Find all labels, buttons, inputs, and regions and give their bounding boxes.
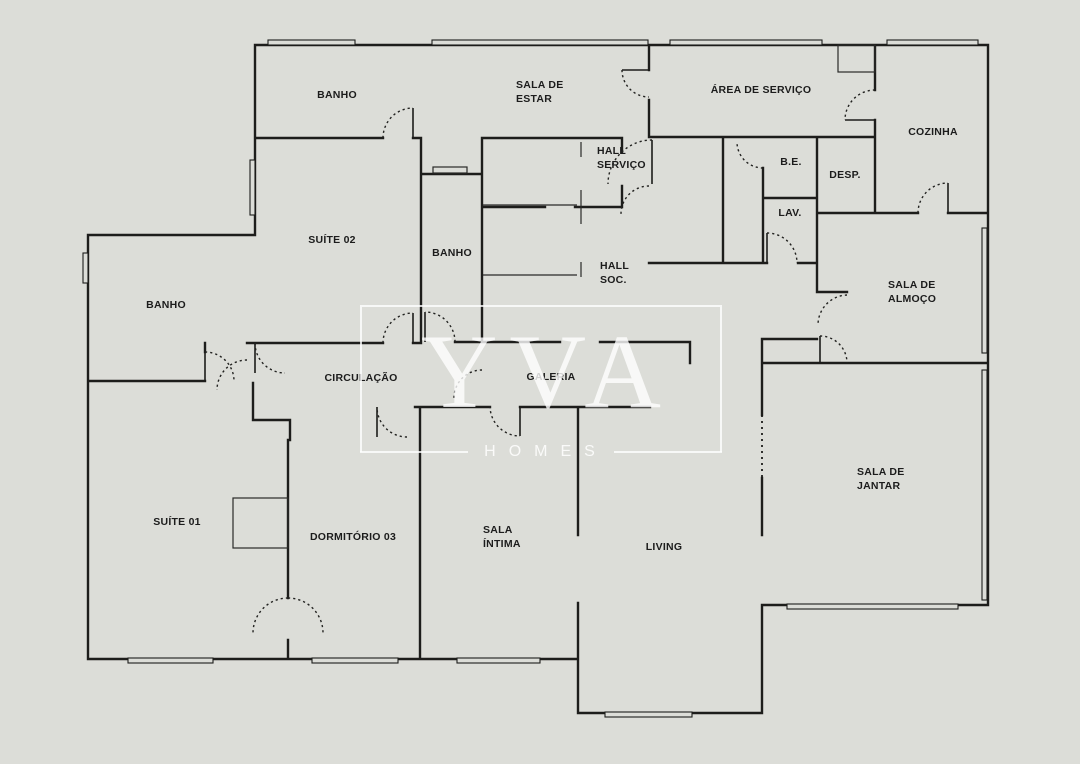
room-label-suite-02: SUÍTE 02 <box>308 234 356 248</box>
room-label-desp: DESP. <box>829 169 860 183</box>
room-label-sala-intima: SALA ÍNTIMA <box>483 524 521 552</box>
room-label-hall-soc: HALL SOC. <box>600 260 629 288</box>
room-label-suite-01: SUÍTE 01 <box>153 516 201 530</box>
room-label-sala-de-jantar: SALA DE JANTAR <box>857 466 904 494</box>
room-label-cozinha: COZINHA <box>908 126 958 140</box>
door-arcs <box>205 70 948 633</box>
room-label-sala-de-almoco: SALA DE ALMOÇO <box>888 279 936 307</box>
room-label-living: LIVING <box>646 541 683 555</box>
room-label-lav: LAV. <box>778 207 801 221</box>
fixtures <box>233 45 875 548</box>
room-label-hall-servico: HALL SERVIÇO <box>597 145 646 173</box>
floorplan-canvas: BANHO SALA DE ESTAR ÁREA DE SERVIÇO COZI… <box>0 0 1080 764</box>
room-label-sala-de-estar: SALA DE ESTAR <box>516 79 563 107</box>
room-label-banho-meio: BANHO <box>432 247 472 261</box>
room-label-banho-top: BANHO <box>317 89 357 103</box>
room-label-banho-esquerda: BANHO <box>146 299 186 313</box>
room-label-dormitorio-03: DORMITÓRIO 03 <box>310 531 396 545</box>
room-label-circulacao: CIRCULAÇÃO <box>324 372 397 386</box>
room-label-be: B.E. <box>780 156 801 170</box>
door-leaves <box>205 70 948 437</box>
room-label-area-de-servico: ÁREA DE SERVIÇO <box>711 84 812 98</box>
room-label-galeria: GALERIA <box>527 371 576 385</box>
